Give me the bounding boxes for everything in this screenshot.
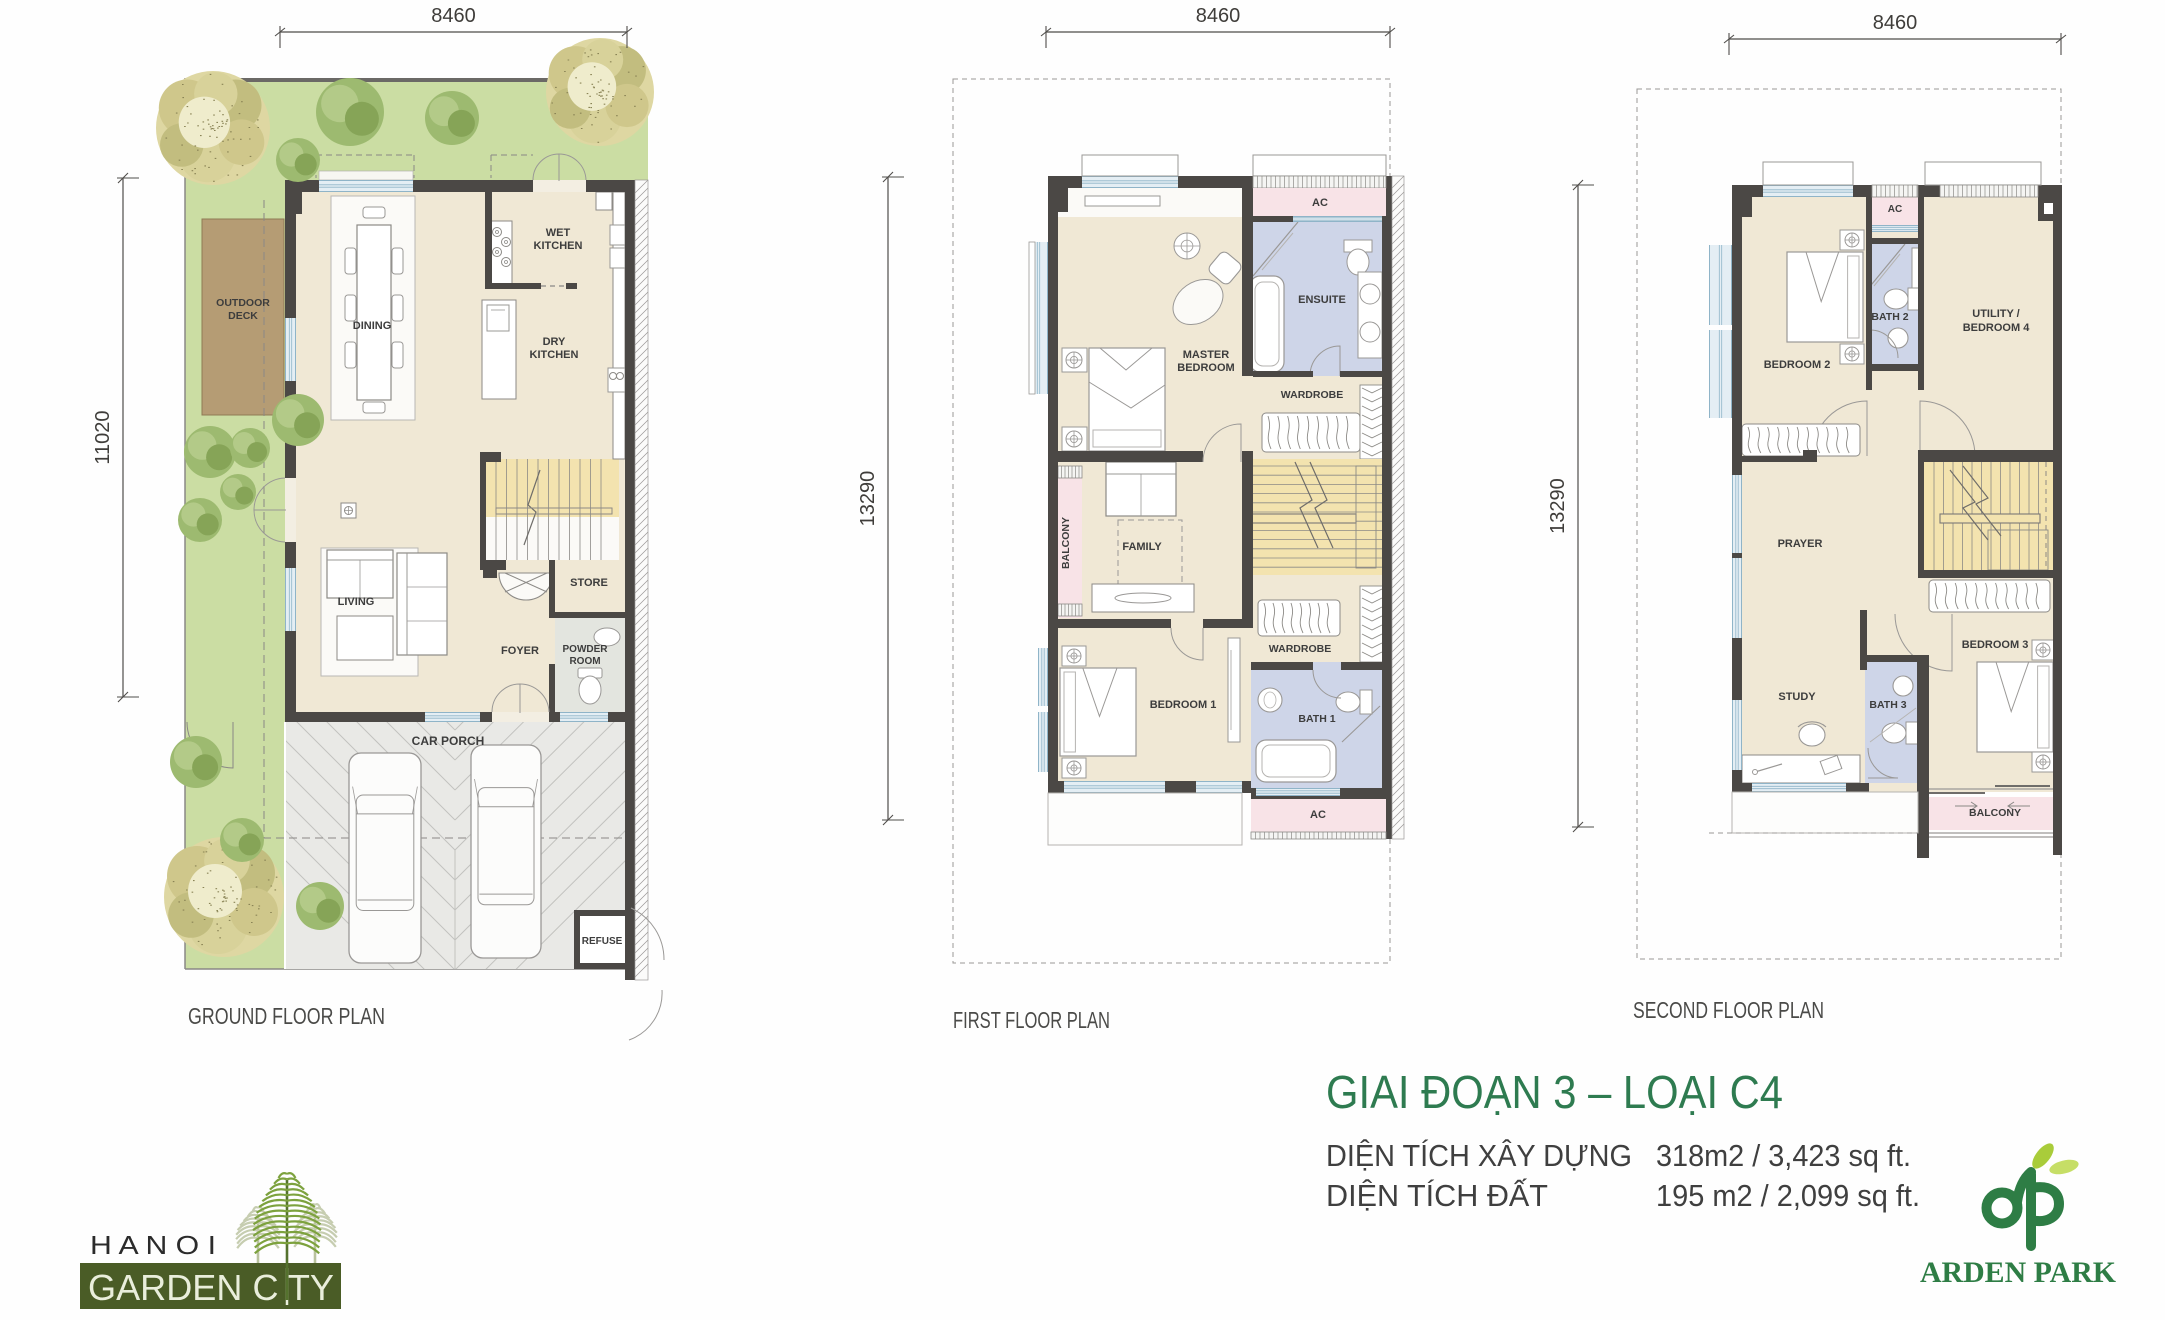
- svg-text:BEDROOM 2: BEDROOM 2: [1764, 359, 1831, 371]
- svg-text:FIRST FLOOR PLAN: FIRST FLOOR PLAN: [953, 1007, 1110, 1033]
- svg-text:GIAI ĐOẠN 3 – LOẠI C4: GIAI ĐOẠN 3 – LOẠI C4: [1326, 1066, 1783, 1118]
- svg-text:CAR PORCH: CAR PORCH: [412, 734, 485, 748]
- svg-text:AC: AC: [1310, 809, 1326, 821]
- svg-text:DINING: DINING: [353, 320, 392, 332]
- svg-text:GARDEN C TY: GARDEN C TY: [88, 1267, 334, 1308]
- svg-text:BALCONY: BALCONY: [1060, 517, 1072, 569]
- svg-text:OUTDOOR: OUTDOOR: [216, 297, 270, 309]
- svg-text:BATH 2: BATH 2: [1871, 311, 1908, 323]
- svg-text:ARDEN PARK: ARDEN PARK: [1920, 1256, 2117, 1289]
- svg-text:LIVING: LIVING: [338, 596, 375, 608]
- svg-text:8460: 8460: [1196, 5, 1241, 27]
- svg-text:SECOND FLOOR PLAN: SECOND FLOOR PLAN: [1633, 997, 1824, 1023]
- svg-text:WARDROBE: WARDROBE: [1281, 389, 1343, 401]
- svg-text:MASTER: MASTER: [1183, 349, 1230, 361]
- svg-text:DIỆN TÍCH ĐẤT: DIỆN TÍCH ĐẤT: [1326, 1178, 1548, 1213]
- svg-text:KITCHEN: KITCHEN: [530, 349, 579, 361]
- svg-text:13290: 13290: [1547, 478, 1569, 534]
- svg-text:13290: 13290: [857, 471, 879, 527]
- svg-text:POWDER: POWDER: [563, 644, 609, 655]
- svg-text:DIỆN TÍCH XÂY DỰNG: DIỆN TÍCH XÂY DỰNG: [1326, 1138, 1632, 1173]
- svg-text:DRY: DRY: [543, 336, 566, 348]
- svg-text:BEDROOM: BEDROOM: [1177, 362, 1234, 374]
- svg-text:PRAYER: PRAYER: [1778, 538, 1823, 550]
- svg-text:AC: AC: [1888, 204, 1902, 215]
- svg-text:ROOM: ROOM: [569, 656, 600, 667]
- svg-text:11020: 11020: [92, 410, 114, 464]
- svg-text:FOYER: FOYER: [501, 645, 539, 657]
- svg-text:BEDROOM 4: BEDROOM 4: [1963, 322, 2031, 334]
- svg-text:ENSUITE: ENSUITE: [1298, 294, 1346, 306]
- svg-text:STORE: STORE: [570, 577, 608, 589]
- svg-text:WARDROBE: WARDROBE: [1269, 643, 1331, 655]
- svg-text:8460: 8460: [1873, 12, 1918, 34]
- svg-text:BATH 3: BATH 3: [1869, 699, 1906, 711]
- svg-text:BALCONY: BALCONY: [1969, 807, 2021, 819]
- svg-text:AC: AC: [1312, 197, 1328, 209]
- svg-text:BEDROOM 3: BEDROOM 3: [1962, 639, 2029, 651]
- svg-text:REFUSE: REFUSE: [582, 936, 623, 947]
- svg-text:BEDROOM 1: BEDROOM 1: [1150, 699, 1217, 711]
- svg-text:WET: WET: [546, 227, 571, 239]
- svg-text:H A N O I: H A N O I: [90, 1230, 216, 1260]
- svg-text:195 m2 / 2,099 sq ft.: 195 m2 / 2,099 sq ft.: [1656, 1178, 1920, 1213]
- svg-text:8460: 8460: [431, 5, 476, 27]
- svg-text:DECK: DECK: [228, 310, 258, 322]
- svg-text:FAMILY: FAMILY: [1122, 541, 1162, 553]
- svg-text:UTILITY /: UTILITY /: [1972, 308, 2019, 320]
- svg-text:318m2 / 3,423 sq ft.: 318m2 / 3,423 sq ft.: [1656, 1138, 1911, 1173]
- svg-text:STUDY: STUDY: [1778, 691, 1816, 703]
- svg-text:GROUND FLOOR PLAN: GROUND FLOOR PLAN: [188, 1003, 385, 1029]
- svg-text:BATH 1: BATH 1: [1298, 713, 1335, 725]
- svg-text:KITCHEN: KITCHEN: [534, 240, 583, 252]
